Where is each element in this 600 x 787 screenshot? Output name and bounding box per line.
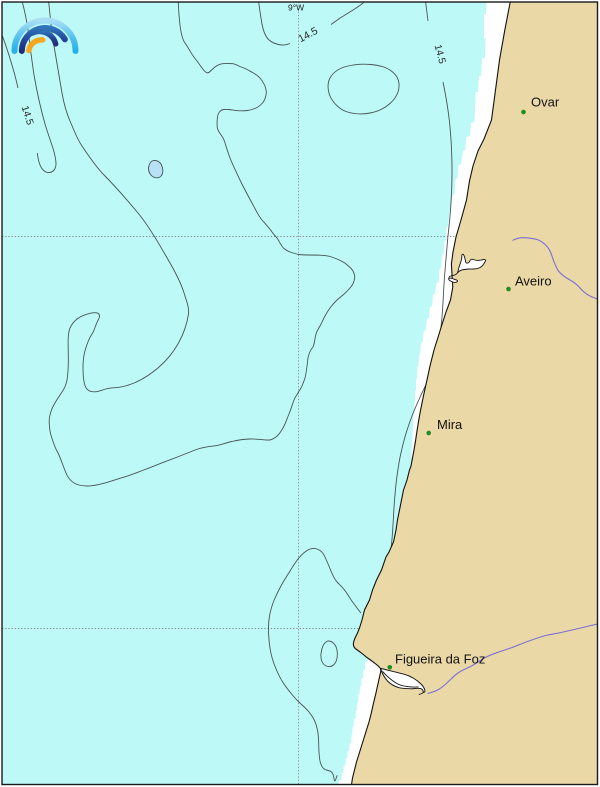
svg-text:Ovar: Ovar (531, 95, 560, 110)
svg-text:9°W: 9°W (288, 3, 304, 13)
svg-text:Aveiro: Aveiro (515, 274, 552, 289)
svg-text:Figueira da Foz: Figueira da Foz (395, 652, 485, 667)
svg-text:Mira: Mira (437, 417, 463, 432)
